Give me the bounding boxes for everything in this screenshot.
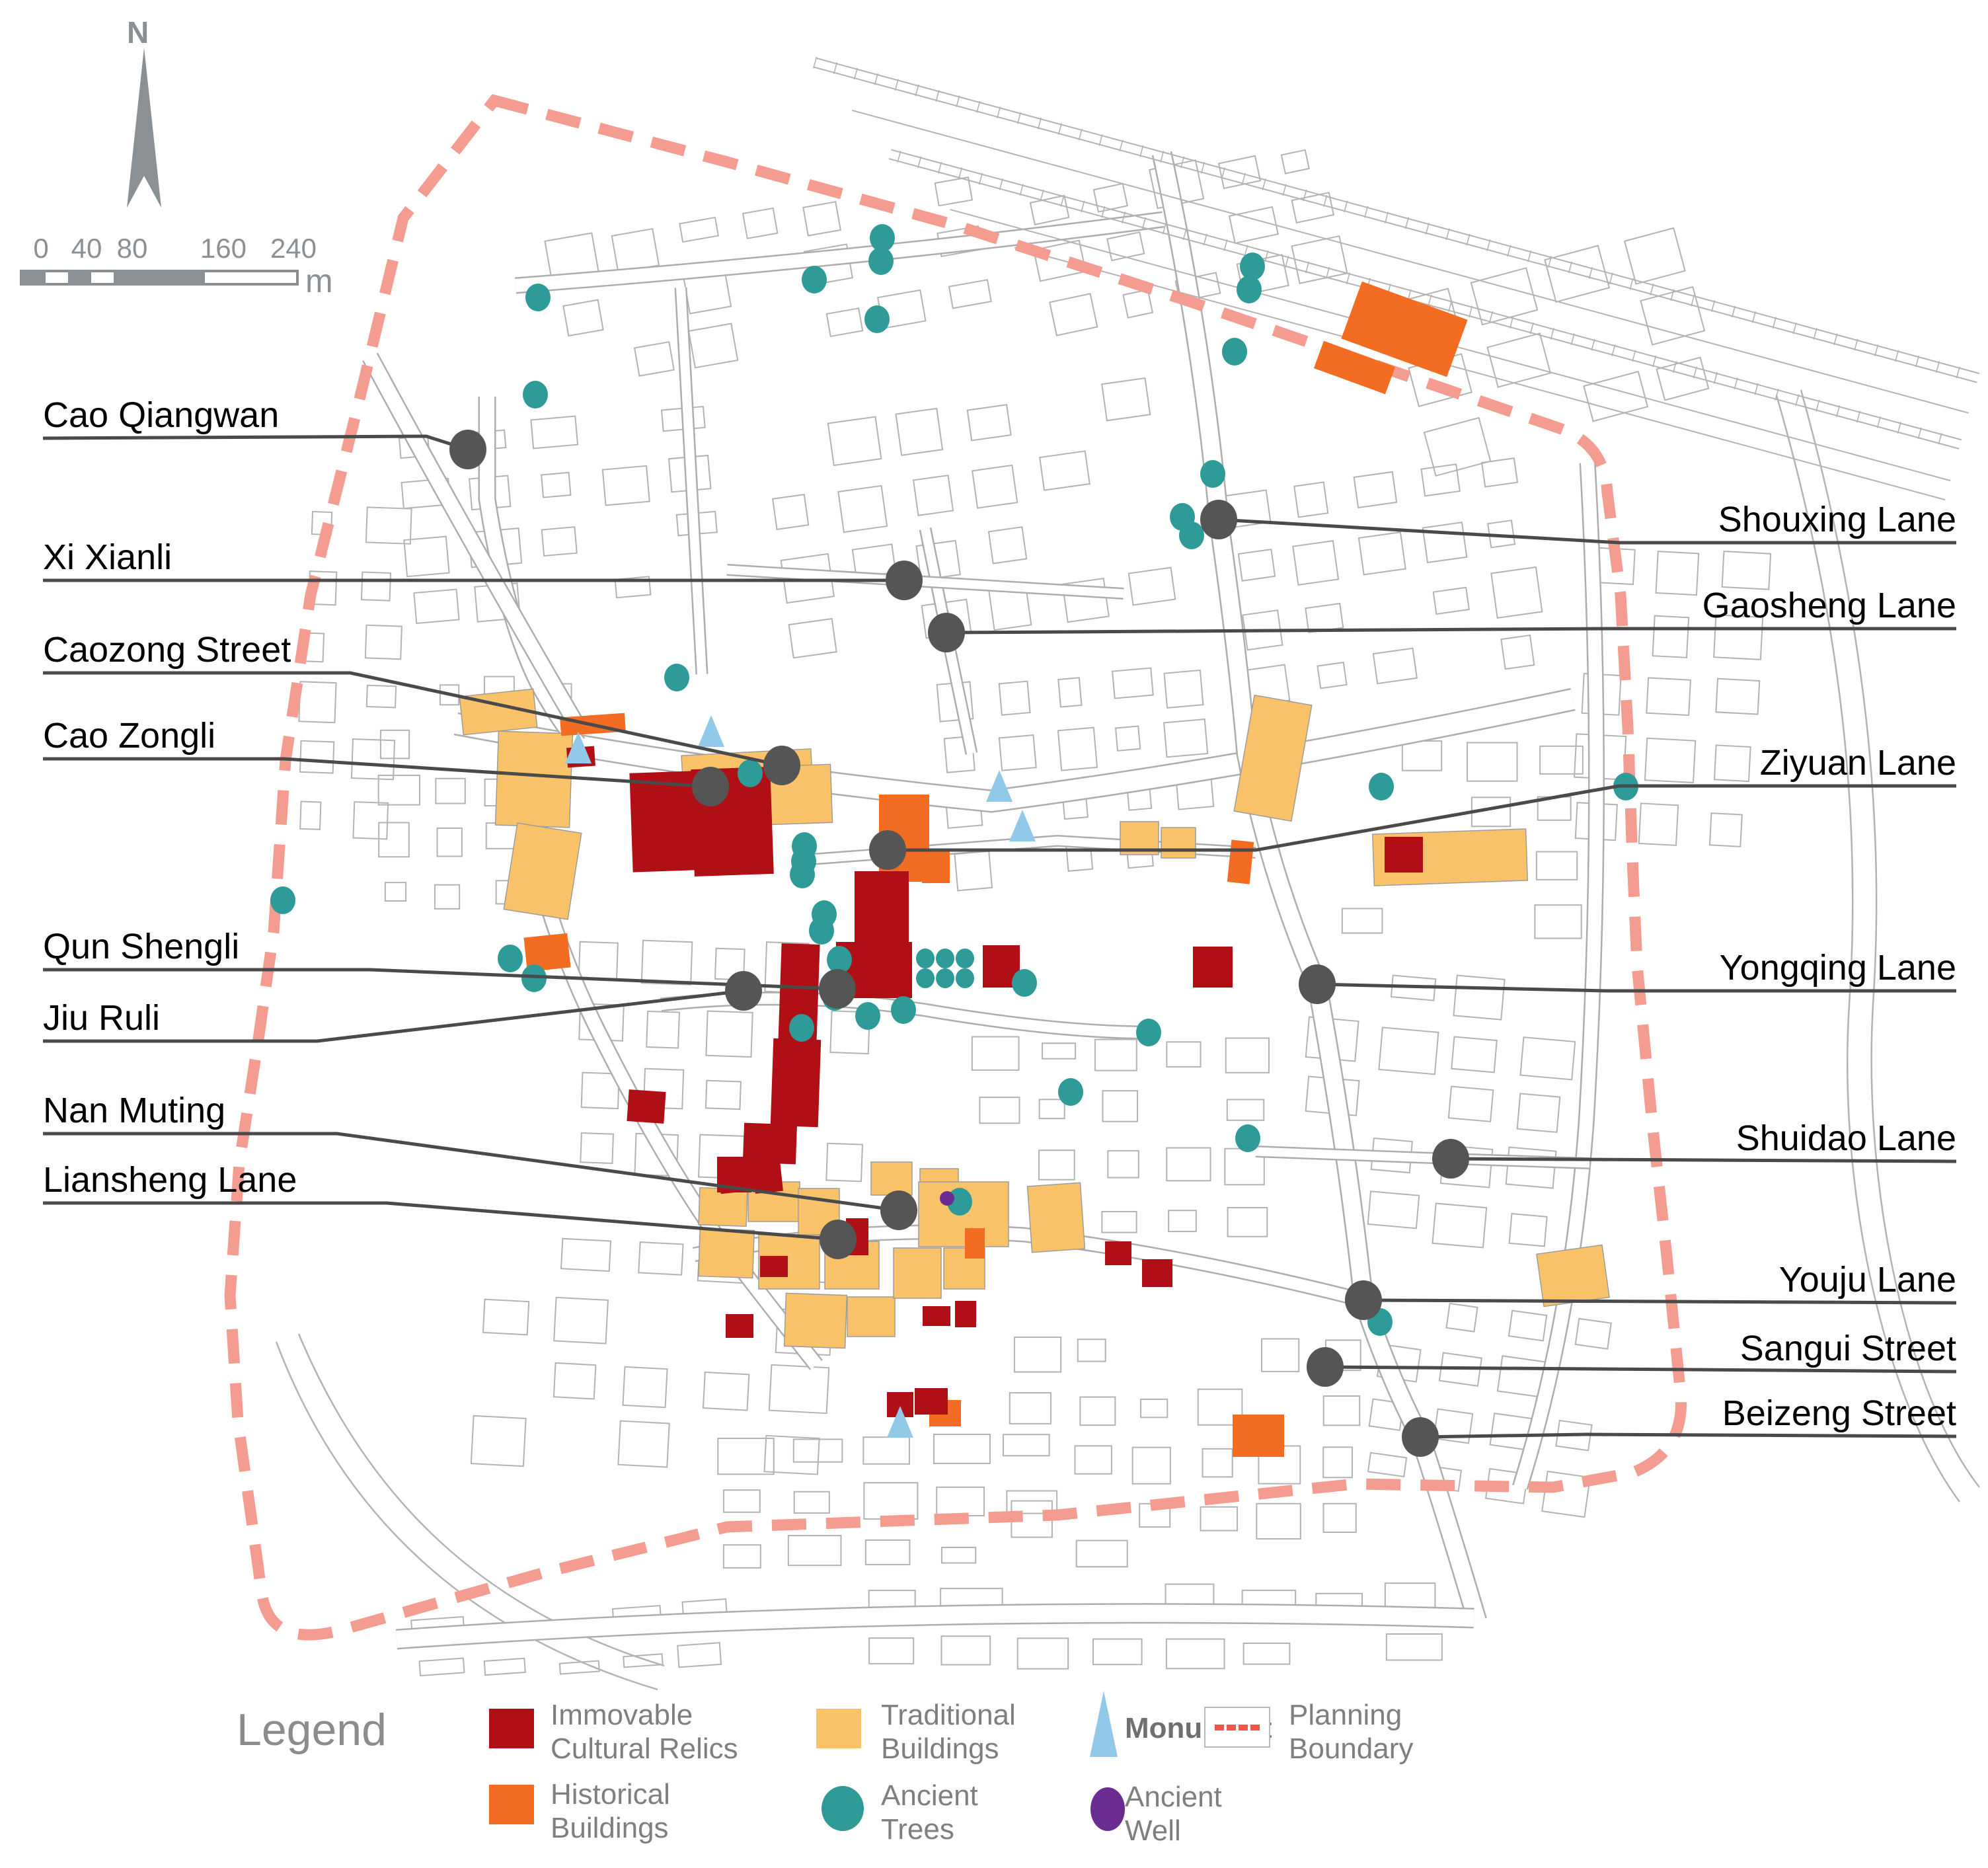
building-traditional [1537, 1245, 1609, 1306]
street-label-dot [1345, 1280, 1382, 1320]
building-immovable [627, 1089, 666, 1124]
ancient-tree-marker [1240, 253, 1265, 280]
label-leader-line [946, 629, 1956, 633]
traditional-swatch-icon [816, 1709, 861, 1748]
building-traditional [699, 1229, 754, 1278]
ancient-tree-marker [1222, 338, 1247, 366]
legend-title: Legend [237, 1704, 387, 1756]
street-label-youju-lane: Youju Lane [1779, 1261, 1956, 1299]
building-immovable [955, 1301, 976, 1327]
ancient-tree-marker [916, 968, 935, 988]
street-label-ziyuan-lane: Ziyuan Lane [1760, 744, 1956, 782]
building-traditional [504, 823, 581, 919]
ancient-tree-marker [523, 381, 548, 409]
ancient-tree-marker [738, 759, 763, 787]
street-label-dot [880, 1190, 917, 1230]
building-traditional [784, 1293, 847, 1348]
street-label-dot [1307, 1347, 1344, 1387]
building-traditional [1161, 828, 1196, 858]
immovable-swatch-icon [489, 1709, 534, 1748]
street-label-cao-zongli: Cao Zongli [43, 717, 215, 755]
street-label-cao-qiangwan: Cao Qiangwan [43, 397, 279, 434]
street-label-sangui-street: Sangui Street [1740, 1330, 1956, 1368]
street-label-yongqing-lane: Yongqing Lane [1720, 949, 1956, 987]
building-historical [965, 1228, 985, 1259]
ancient-tree-marker [802, 266, 827, 293]
building-immovable [923, 1306, 950, 1326]
ancient-tree-marker [1369, 773, 1394, 800]
building-immovable [751, 1153, 783, 1194]
planning-boundary-swatch-icon [1204, 1707, 1270, 1748]
building-traditional [894, 1248, 941, 1298]
street-label-dot [820, 1220, 857, 1259]
building-historical [1233, 1415, 1284, 1457]
building-immovable [915, 1388, 948, 1415]
ancient-tree-marker [270, 886, 295, 914]
monument-swatch-icon [1088, 1687, 1120, 1761]
building-immovable [760, 1256, 788, 1277]
street-label-dot [449, 430, 486, 469]
ancient-tree-marker [936, 968, 954, 988]
ancient-tree-marker [498, 945, 523, 972]
ancient-tree-marker [855, 1002, 880, 1030]
street-label-shuidao-lane: Shuidao Lane [1736, 1120, 1956, 1157]
ancient-tree-marker [936, 949, 954, 968]
building-traditional [871, 1162, 912, 1195]
ancient-tree-marker [1237, 276, 1262, 303]
building-immovable [1193, 947, 1233, 988]
map-canvas [0, 0, 1988, 1868]
ancient-tree-marker [916, 949, 935, 968]
ancient-tree-marker [525, 284, 551, 311]
street-label-dot [725, 971, 762, 1011]
street-label-xi-xianli: Xi Xianli [43, 539, 172, 576]
ancient-tree-marker [868, 247, 894, 275]
monument-marker [1009, 810, 1036, 841]
street-label-dot [886, 561, 923, 600]
ancient-tree-marker [809, 917, 834, 945]
street-label-dot [819, 969, 856, 1009]
building-layer [459, 282, 1609, 1457]
label-leader-line [1420, 1434, 1956, 1437]
label-leader-line [43, 759, 710, 787]
building-traditional [496, 731, 573, 828]
ancient-tree-marker [1235, 1124, 1260, 1152]
railway-lines [814, 57, 1979, 500]
street-label-beizeng-street: Beizeng Street [1722, 1395, 1956, 1432]
building-immovable [1105, 1241, 1131, 1265]
street-label-qun-shengli: Qun Shengli [43, 928, 239, 966]
street-label-dot [928, 613, 965, 652]
building-immovable [771, 1038, 822, 1127]
ancient-tree-marker [1058, 1078, 1083, 1106]
street-label-dot [869, 830, 906, 870]
street-label-dot [1402, 1417, 1439, 1457]
street-label-dot [692, 767, 729, 806]
ancient-tree-marker [790, 861, 815, 888]
street-label-dot [1432, 1139, 1469, 1179]
monument-marker [986, 770, 1013, 802]
label-leader-line [1363, 1300, 1956, 1303]
ancient-tree-marker [956, 949, 974, 968]
map-figure: N 0 40 80 160 240 m Cao Qiangwan Xi Xian… [0, 0, 1988, 1868]
street-label-jiu-ruli: Jiu Ruli [43, 999, 160, 1037]
street-label-gaosheng-lane: Gaosheng Lane [1702, 587, 1956, 625]
building-traditional [1028, 1183, 1085, 1252]
building-immovable [1142, 1259, 1172, 1287]
historical-swatch-icon [489, 1785, 534, 1824]
building-immovable [1385, 837, 1423, 873]
ancient-tree-marker [956, 968, 974, 988]
street-label-dot [763, 746, 800, 785]
ancient-tree-marker [664, 664, 689, 691]
ancient-tree-marker [1136, 1019, 1161, 1046]
building-immovable [726, 1314, 753, 1338]
street-label-dot [1299, 964, 1336, 1004]
legend: Legend Immovable Cultural Relics Histori… [0, 1687, 1988, 1868]
ancient-tree-swatch-icon [822, 1786, 864, 1831]
street-label-nan-muting: Nan Muting [43, 1092, 225, 1130]
ancient-well-swatch-icon [1090, 1787, 1125, 1831]
street-label-shouxing-lane: Shouxing Lane [1718, 501, 1956, 539]
street-label-caozong-street: Caozong Street [43, 631, 291, 669]
ancient-tree-marker [1179, 522, 1204, 549]
ancient-well-marker [940, 1191, 954, 1206]
monument-marker [698, 715, 724, 747]
ancient-tree-marker [864, 305, 890, 333]
ancient-tree-marker [891, 996, 916, 1024]
ancient-tree-marker [1012, 969, 1037, 997]
building-traditional [847, 1297, 895, 1337]
building-historical [1227, 839, 1254, 884]
street-label-liansheng-lane: Liansheng Lane [43, 1161, 297, 1199]
building-historical [922, 851, 950, 883]
street-label-dot [1200, 500, 1237, 539]
ancient-tree-marker [789, 1014, 814, 1042]
ancient-tree-marker [1200, 460, 1225, 488]
